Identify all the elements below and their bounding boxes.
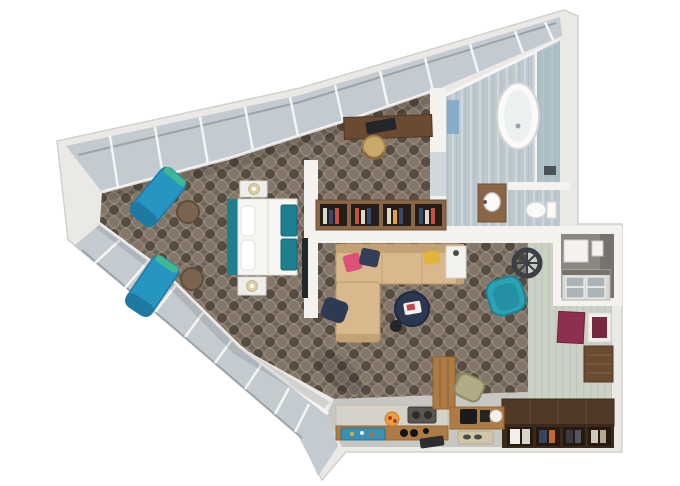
sofa-pillow-yellow — [423, 250, 441, 265]
bed-teal-throw — [281, 239, 297, 270]
wall-toilet-stub — [508, 182, 570, 190]
vanity — [478, 184, 506, 222]
wall-art-maroon-1 — [557, 311, 585, 343]
tall-cabinet — [433, 357, 455, 409]
bookshelf-divider — [316, 200, 446, 230]
bed-pillow — [241, 240, 255, 270]
shower-fixture — [544, 166, 556, 175]
shoes — [463, 435, 471, 440]
appliance-counter — [450, 407, 504, 429]
sofa-back — [336, 244, 464, 253]
sink-tap — [483, 200, 487, 204]
toaster — [480, 410, 490, 422]
floor-mat — [458, 431, 493, 444]
bed-pillow — [241, 206, 255, 236]
entrance-door — [584, 346, 613, 382]
tub-drain — [516, 124, 521, 129]
toilet — [526, 202, 556, 218]
kitchen-counter — [336, 405, 448, 440]
toilet-bowl — [526, 202, 546, 218]
side-table-1 — [177, 201, 199, 223]
bathroom-door-opening — [430, 152, 446, 196]
wall-bathroom-left-upper — [430, 88, 446, 152]
white-side-table — [446, 246, 466, 278]
bathtub — [497, 83, 539, 149]
cooktop — [408, 407, 436, 423]
side-table-2 — [181, 268, 203, 290]
bed-headboard — [227, 199, 238, 275]
wardrobe — [502, 399, 614, 448]
bed — [227, 199, 297, 275]
minibar-cabinet — [562, 270, 610, 300]
coffee-machine — [460, 409, 477, 424]
nightstand-top — [240, 181, 267, 197]
bed-teal-throw — [281, 205, 297, 236]
bathroom-mirror — [447, 100, 459, 134]
shoes — [474, 435, 482, 440]
wall-tv — [302, 238, 308, 298]
nook-shelf-box — [592, 241, 603, 256]
desk-chair — [363, 136, 385, 158]
wheel-clock-decor — [514, 250, 540, 276]
toilet-tank — [547, 202, 556, 218]
floorplan-svg — [0, 0, 680, 486]
minibar-nook — [553, 226, 622, 306]
wall-art-maroon-2 — [588, 313, 611, 342]
work-desk — [344, 114, 433, 139]
fruit-bowl — [385, 412, 399, 426]
mini-fridge — [564, 240, 588, 262]
side-stool — [390, 320, 402, 332]
nightstand-bottom — [238, 277, 266, 295]
kettle — [490, 410, 502, 422]
floorplan-canvas — [0, 0, 680, 486]
